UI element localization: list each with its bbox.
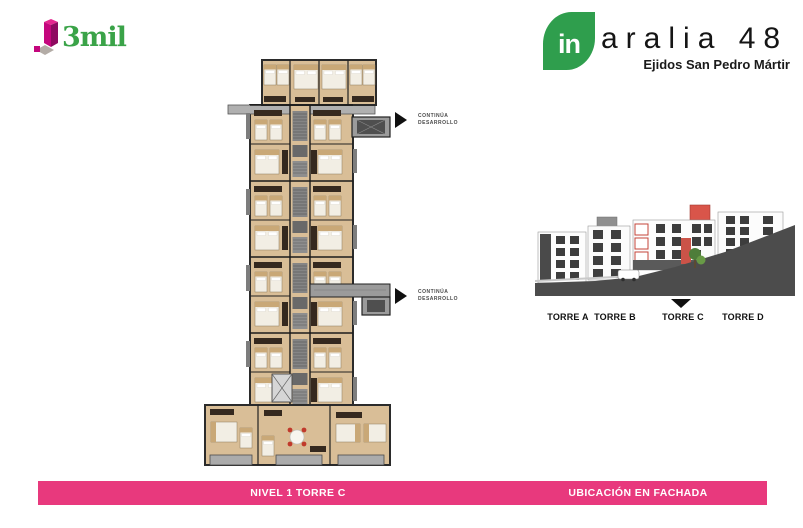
slide: 3mil in aralia 48 Ejidos San Pedro Márti… [0, 0, 803, 528]
arrow-right-icon [395, 112, 407, 128]
plan-terraces [210, 455, 384, 465]
footer-bar: NIVEL 1 TORRE C UBICACIÓN EN FACHADA [38, 481, 767, 505]
annotation-continua-upper: CONTINÚA DESARROLLO [395, 112, 464, 128]
project-title: aralia 48 [601, 22, 788, 56]
brand-3mil-wordmark: 3mil [62, 22, 126, 53]
facade-elevation [535, 200, 795, 296]
plan-stair-protrusion-upper [352, 117, 390, 137]
in-badge-text: in [558, 23, 580, 60]
in-leaf-icon: in [543, 12, 595, 70]
floor-plan [198, 56, 394, 468]
dining-table [288, 428, 307, 447]
tower-label-a: TORRE A [547, 312, 588, 322]
plan-bottom-block [205, 405, 390, 465]
tower-label-d: TORRE D [722, 312, 764, 322]
annotation-text: CONTINÚA DESARROLLO [418, 113, 464, 128]
arrow-down-icon [671, 299, 691, 308]
tower-label-c: TORRE C [662, 312, 704, 322]
arrow-right-icon [395, 288, 407, 304]
plan-x-stairwell [272, 374, 292, 402]
project-subtitle: Ejidos San Pedro Mártir [590, 57, 790, 72]
tower-cube-icon [32, 19, 62, 59]
annotation-text: CONTINÚA DESARROLLO [418, 289, 464, 304]
annotation-continua-lower: CONTINÚA DESARROLLO [395, 288, 464, 304]
plan-top-block [262, 60, 376, 105]
facade-torre-a [538, 232, 586, 283]
tower-label-b: TORRE B [594, 312, 636, 322]
logo-3mil: 3mil [30, 18, 190, 62]
footer-facade-caption: UBICACIÓN EN FACHADA [568, 487, 707, 499]
footer-plan-caption: NIVEL 1 TORRE C [250, 487, 345, 499]
